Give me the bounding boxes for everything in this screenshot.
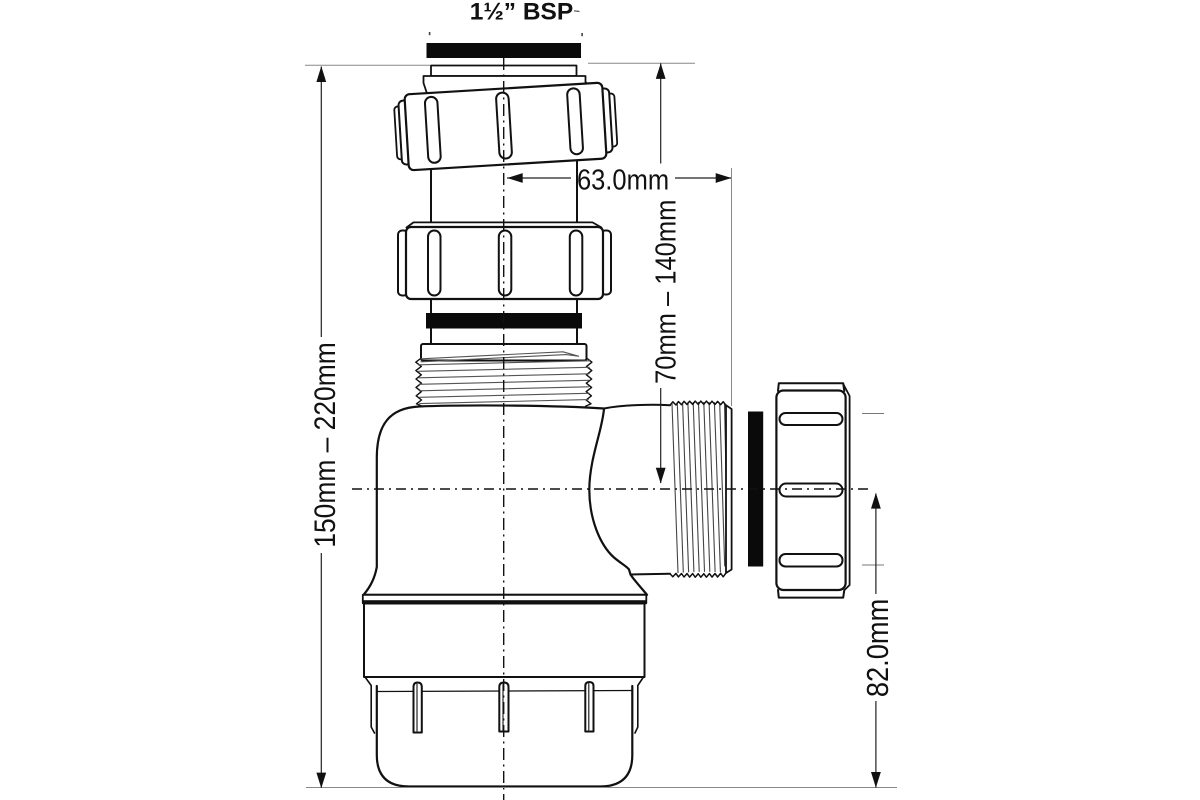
svg-text:1½” BSP: 1½” BSP: [470, 0, 574, 26]
svg-text:70mm – 140mm: 70mm – 140mm: [649, 200, 682, 384]
svg-text:82.0mm: 82.0mm: [861, 599, 895, 698]
svg-text:150mm – 220mm: 150mm – 220mm: [308, 342, 342, 547]
svg-text:63.0mm: 63.0mm: [577, 163, 669, 196]
